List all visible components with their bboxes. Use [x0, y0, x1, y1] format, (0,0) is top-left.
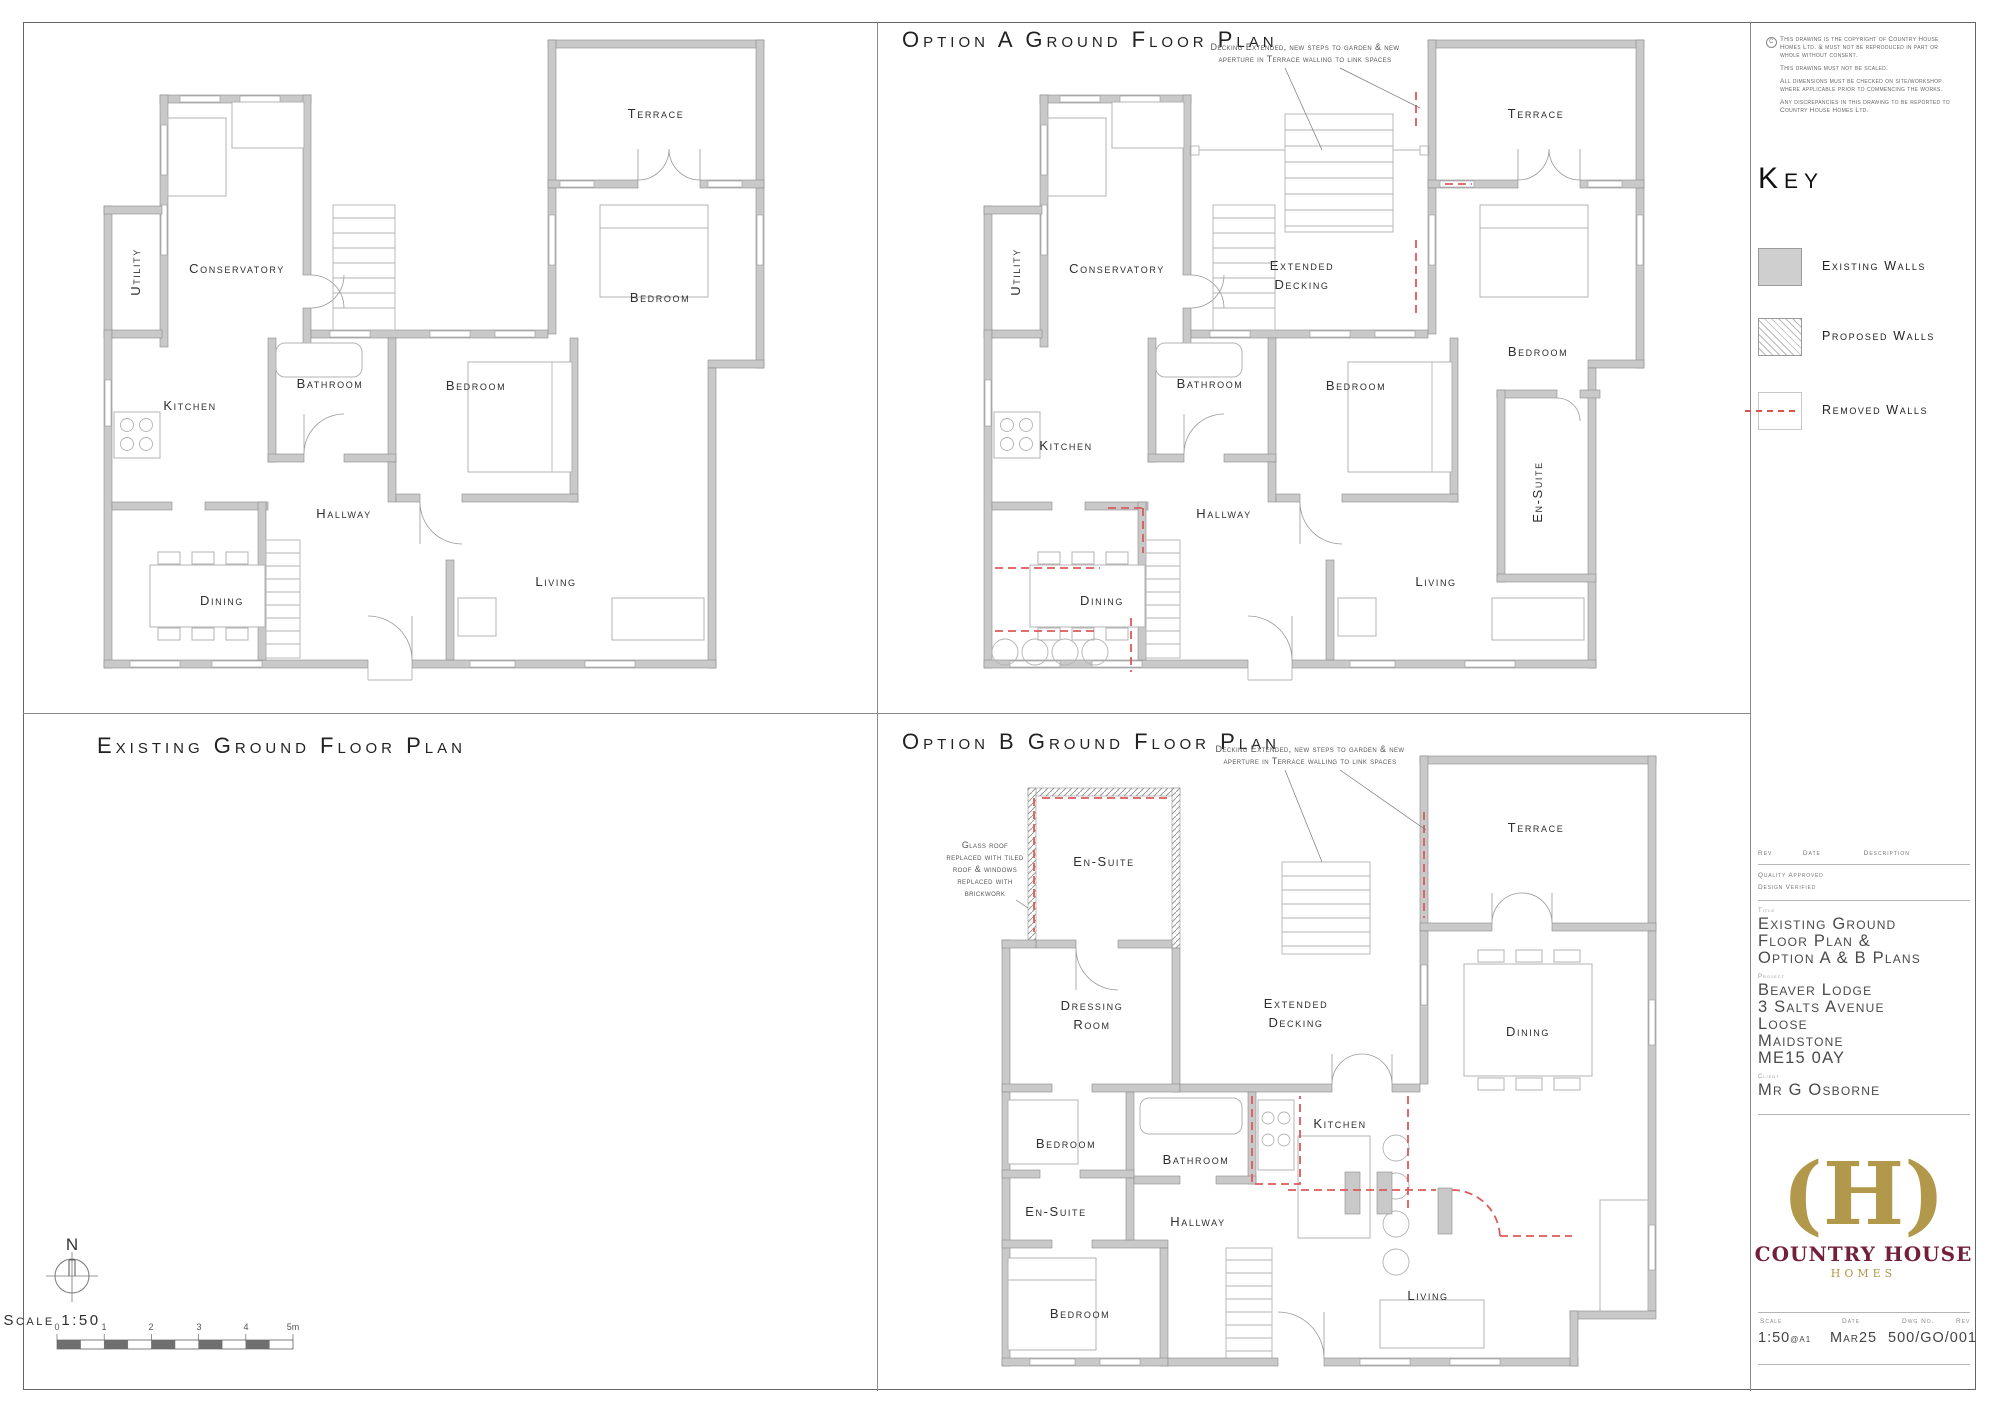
option-b-plan: Decking Extended, new steps to garden & …	[946, 744, 1656, 1366]
option-b-annotation-glass-line3: roof & windows	[953, 864, 1017, 874]
room-label: Decking	[1268, 1015, 1323, 1030]
project-line2: 3 Salts Avenue	[1758, 999, 1885, 1016]
option-b-annotation-decking-line2: aperture in Terrace walling to link spac…	[1224, 756, 1397, 766]
room-label: Room	[1073, 1017, 1110, 1032]
key-item-removed-walls: Removed Walls	[1758, 392, 1970, 438]
option-a-plan-walls	[984, 40, 1644, 680]
drawing-title-line3: Option A & B Plans	[1758, 950, 1921, 967]
project-line4: Maidstone	[1758, 1033, 1844, 1050]
option-b-annotation-decking-line1: Decking Extended, new steps to garden & …	[1216, 744, 1405, 754]
room-label: Dressing	[1061, 998, 1124, 1013]
room-label: Bedroom	[446, 378, 506, 393]
title-block: C This drawing is the copyright of Count…	[1750, 22, 1977, 1391]
logo-sub: HOMES	[1750, 1267, 1977, 1280]
proposed-walls-swatch	[1758, 318, 1802, 356]
design-verified: Design Verified	[1758, 884, 1816, 891]
room-label: Dining	[1080, 593, 1124, 608]
room-label: Bedroom	[1036, 1136, 1096, 1151]
title-label: Title	[1758, 908, 1775, 914]
room-label: Hallway	[1196, 506, 1251, 521]
scale-tick-4: 4	[243, 1322, 248, 1332]
scale-label: Scale	[1760, 1318, 1782, 1325]
north-letter: N	[66, 1235, 78, 1254]
room-label: En-Suite	[1530, 461, 1545, 522]
existing-plan-walls	[104, 40, 764, 680]
divider	[1758, 1364, 1970, 1365]
key-title: Key	[1758, 162, 1824, 196]
scale-tick-3: 3	[196, 1322, 201, 1332]
drawing-sheet: Existing Ground Floor Plan Option A Grou…	[0, 0, 2000, 1413]
room-label: Dining	[200, 593, 244, 608]
project-line3: Loose	[1758, 1016, 1808, 1033]
company-logo: (H) COUNTRY HOUSE HOMES	[1750, 1150, 1977, 1280]
room-label: Extended	[1264, 996, 1328, 1011]
room-label: Bedroom	[1326, 378, 1386, 393]
room-label: En-Suite	[1073, 854, 1134, 869]
room-label: Terrace	[1508, 820, 1565, 835]
date-label: Date	[1842, 1318, 1860, 1325]
scale-tick-1: 1	[101, 1322, 106, 1332]
client-label: Client	[1758, 1074, 1780, 1080]
room-label: Bedroom	[1050, 1306, 1110, 1321]
removed-walls-swatch	[1758, 392, 1802, 430]
plans-canvas: Terrace Bedroom Conservatory Utility Kit…	[0, 0, 2000, 1413]
scale-tick-0: 0	[54, 1322, 59, 1332]
room-label: Hallway	[1170, 1214, 1225, 1229]
divider	[1758, 1312, 1970, 1313]
existing-walls-swatch	[1758, 248, 1802, 286]
room-label: Bedroom	[630, 290, 690, 305]
project-line1: Beaver Lodge	[1758, 982, 1872, 999]
room-label: Bathroom	[297, 376, 364, 391]
project-line5: ME15 0AY	[1758, 1050, 1845, 1067]
scale-tick-5: 5m	[287, 1322, 300, 1332]
drawing-title-line2: Floor Plan &	[1758, 933, 1871, 950]
option-b-annotation-glass-line4: replaced with	[957, 876, 1012, 886]
rev-label: Rev	[1956, 1318, 1970, 1325]
room-label: Bedroom	[1508, 344, 1568, 359]
room-label: Living	[1415, 574, 1456, 589]
option-a-annotation-line2: aperture in Terrace walling to link spac…	[1219, 54, 1392, 64]
logo-name: COUNTRY HOUSE	[1750, 1242, 1977, 1266]
scale-bar: Scale 1:50 0 1 2 3 4 5m	[3, 1312, 299, 1349]
room-label: Kitchen	[1039, 438, 1092, 453]
room-label: Decking	[1274, 277, 1329, 292]
room-label: Terrace	[1508, 106, 1565, 121]
room-label: Conservatory	[189, 261, 285, 276]
date-value: Mar25	[1830, 1330, 1877, 1346]
quality-approved: Quality Approved	[1758, 872, 1824, 879]
room-label: Bathroom	[1163, 1152, 1230, 1167]
room-label: Conservatory	[1069, 261, 1165, 276]
divider	[1758, 900, 1970, 901]
room-label: Living	[535, 574, 576, 589]
option-b-annotation-glass-line2: replaced with tiled	[946, 852, 1024, 862]
dwg-no-value: 500/GO/001	[1888, 1330, 1977, 1346]
north-arrow: N	[46, 1235, 98, 1302]
key-item-proposed-walls: Proposed Walls	[1758, 318, 1970, 364]
scale-tick-2: 2	[148, 1322, 153, 1332]
room-label: Living	[1407, 1288, 1448, 1303]
room-label: Dining	[1506, 1024, 1550, 1039]
room-label: En-Suite	[1025, 1204, 1086, 1219]
divider	[1758, 1114, 1970, 1115]
client-name: Mr G Osborne	[1758, 1082, 1880, 1099]
dwg-no-label: Dwg No.	[1902, 1318, 1935, 1325]
scale-bar-label: Scale 1:50	[3, 1312, 100, 1329]
drawing-title-line1: Existing Ground	[1758, 916, 1896, 933]
room-label: Utility	[128, 248, 143, 296]
copyright-notice: C This drawing is the copyright of Count…	[1766, 36, 1966, 115]
revision-header-row: Rev Date Description	[1758, 850, 1970, 857]
room-label: Hallway	[316, 506, 371, 521]
logo-monogram-icon: (H)	[1750, 1150, 1977, 1240]
scale-value: 1:50@A1	[1758, 1330, 1811, 1346]
project-label: Project	[1758, 974, 1785, 980]
room-label: Kitchen	[163, 398, 216, 413]
copyright-icon: C	[1766, 37, 1777, 48]
divider	[1758, 864, 1970, 865]
scale-bar-graphic	[57, 1334, 293, 1349]
room-label: Kitchen	[1313, 1116, 1366, 1131]
room-label: Utility	[1008, 248, 1023, 296]
room-label: Bathroom	[1177, 376, 1244, 391]
key-item-existing-walls: Existing Walls	[1758, 248, 1970, 294]
room-label: Extended	[1270, 258, 1334, 273]
option-b-annotation-glass-line1: Glass roof	[962, 840, 1008, 850]
room-label: Terrace	[628, 106, 685, 121]
option-b-annotation-glass-line5: brickwork	[965, 888, 1006, 898]
option-a-annotation-line1: Decking Extended, new steps to garden & …	[1211, 42, 1400, 52]
